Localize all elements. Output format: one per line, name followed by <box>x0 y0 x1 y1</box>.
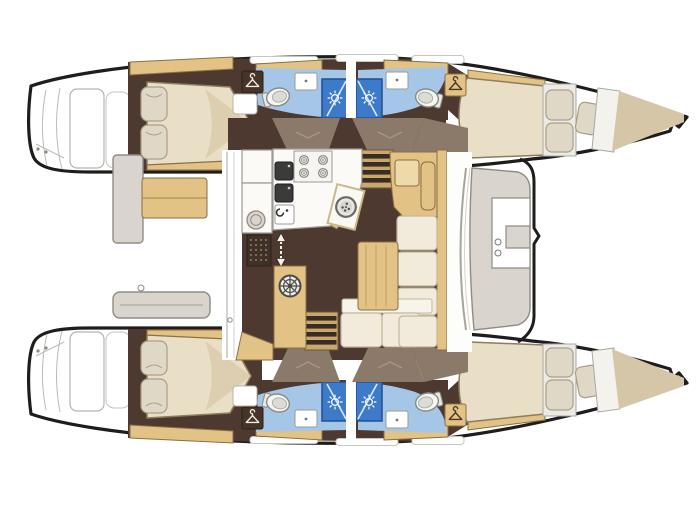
catamaran-floor-plan: Catamaran sailing yacht accommodation an… <box>0 0 700 525</box>
sofa-back-wall <box>437 150 447 350</box>
stove-burner-icon <box>319 156 328 165</box>
deck-fitting <box>495 239 501 245</box>
deck-fitting <box>495 250 501 256</box>
galley-sink <box>275 162 293 180</box>
stove <box>294 151 332 182</box>
nav-seat <box>395 160 419 186</box>
deck-fitting <box>138 285 144 291</box>
aft-door-wall <box>222 150 242 360</box>
stove-burner-icon <box>319 169 328 178</box>
cockpit-side-locker <box>113 155 143 243</box>
stove-burner-icon <box>300 156 309 165</box>
sofa-cushion <box>341 313 382 347</box>
sofa-corner-cushion <box>399 316 437 347</box>
companionway-steps <box>305 312 338 350</box>
stove-burner-icon <box>300 169 309 178</box>
sofa-cushion <box>397 252 437 286</box>
companionway-steps <box>360 150 393 188</box>
catamaran-floor-plan-page: Catamaran sailing yacht accommodation an… <box>0 0 700 525</box>
wardrobe-locker <box>445 74 466 96</box>
wardrobe-locker <box>242 71 263 93</box>
coffee-table <box>358 242 398 310</box>
galley-locker <box>242 150 272 183</box>
round-hatch-wheel-icon <box>280 276 301 297</box>
aft-cockpit <box>113 155 234 318</box>
salon <box>222 118 472 382</box>
galley <box>242 149 364 233</box>
forward-cockpit <box>470 168 530 330</box>
sofa-cushion <box>397 216 437 250</box>
nav-panel <box>421 162 435 210</box>
steps-to-port-hull <box>272 118 468 152</box>
galley-sink <box>275 184 293 202</box>
round-sink <box>247 211 265 229</box>
steps-to-starboard-hull <box>272 348 468 382</box>
front-windshield <box>447 152 472 352</box>
